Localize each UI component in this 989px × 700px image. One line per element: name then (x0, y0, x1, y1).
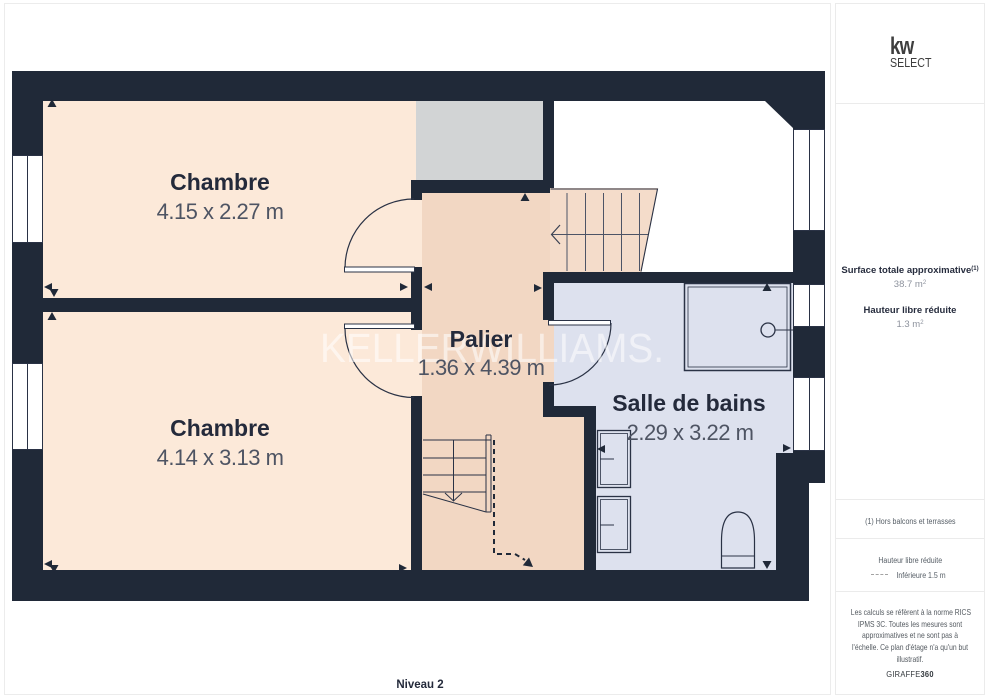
svg-text:Chambre: Chambre (170, 415, 270, 441)
svg-text:4.15 x 2.27 m: 4.15 x 2.27 m (157, 199, 284, 224)
svg-text:Palier: Palier (450, 326, 513, 352)
svg-text:4.14 x 3.13 m: 4.14 x 3.13 m (157, 445, 284, 470)
svg-text:Chambre: Chambre (170, 169, 270, 195)
svg-text:2.29 x 3.22 m: 2.29 x 3.22 m (627, 420, 754, 445)
svg-text:1.36 x 4.39 m: 1.36 x 4.39 m (418, 355, 545, 380)
svg-text:Salle de bains: Salle de bains (612, 390, 765, 416)
svg-text:Niveau 2: Niveau 2 (396, 679, 443, 691)
